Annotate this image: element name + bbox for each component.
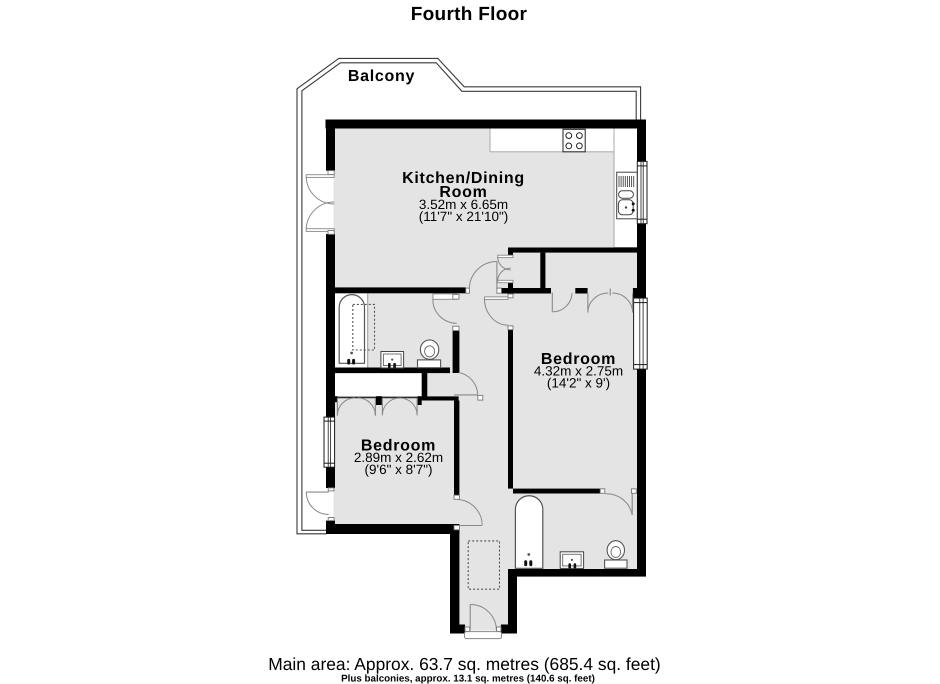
svg-text:(11'7" x 21'10"): (11'7" x 21'10"): [419, 209, 509, 224]
svg-text:Balcony: Balcony: [348, 68, 415, 85]
svg-text:Main area: Approx. 63.7 sq. me: Main area: Approx. 63.7 sq. metres (685.…: [268, 654, 660, 674]
svg-text:(9'6" x 8'7"): (9'6" x 8'7"): [364, 462, 432, 477]
svg-text:Fourth Floor: Fourth Floor: [411, 4, 528, 25]
svg-text:(14'2" x 9'): (14'2" x 9'): [547, 376, 610, 391]
svg-text:Plus balconies, approx. 13.1 s: Plus balconies, approx. 13.1 sq. metres …: [341, 674, 595, 684]
